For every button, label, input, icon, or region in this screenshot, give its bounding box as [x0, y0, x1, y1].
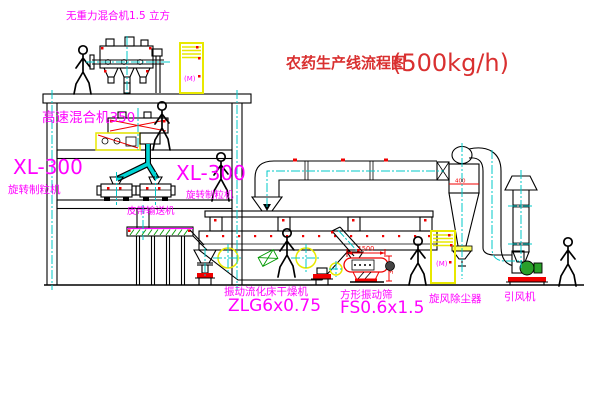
- label-granulator-right-model: XL-300: [176, 161, 246, 185]
- cabinet2-motor-mark: (M): [436, 260, 448, 268]
- cyclone-separator: 400: [437, 147, 479, 267]
- label-cyclone: 旋风除尘器: [429, 292, 482, 305]
- label-granulator-left-name: 旋转制粒机: [8, 183, 61, 196]
- belt-conveyor: [127, 227, 207, 285]
- control-cabinet-1: (M): [180, 43, 203, 93]
- label-granulator-left-model: XL-300: [13, 155, 83, 179]
- fan-duct: [469, 148, 524, 273]
- control-cabinet-2: (M): [431, 231, 455, 283]
- dim-sieve-length: 1500: [358, 245, 375, 253]
- person-figure-2: [153, 102, 170, 150]
- cabinet1-motor-mark: (M): [184, 75, 196, 83]
- label-sieve-model: FS0.6x1.5: [340, 298, 424, 318]
- drawing-title: 农药生产线流程图 (500kg/h): [285, 49, 509, 77]
- label-gravity-mixer: 无重力混合机1.5 立方: [66, 9, 170, 22]
- person-figure-6: [559, 238, 576, 286]
- label-dryer-model: ZLG6x0.75: [228, 296, 321, 316]
- label-belt-conveyor: 皮带输送机: [127, 205, 175, 217]
- drawing-canvas: (M): [0, 0, 600, 403]
- fluid-bed-dryer: [194, 211, 437, 285]
- label-fan: 引风机: [504, 290, 536, 303]
- cad-drawing-page: (M): [0, 0, 600, 403]
- title-name: 农药生产线流程图: [285, 54, 406, 72]
- label-high-speed-mixer: 高速混合机350: [42, 109, 135, 126]
- person-figure-1: [74, 46, 91, 94]
- exhaust-duct: [252, 159, 437, 212]
- label-granulator-right-name: 旋转制粒机: [186, 189, 234, 201]
- dim-cyclone-diameter: 400: [455, 179, 466, 185]
- title-capacity: (500kg/h): [392, 49, 509, 77]
